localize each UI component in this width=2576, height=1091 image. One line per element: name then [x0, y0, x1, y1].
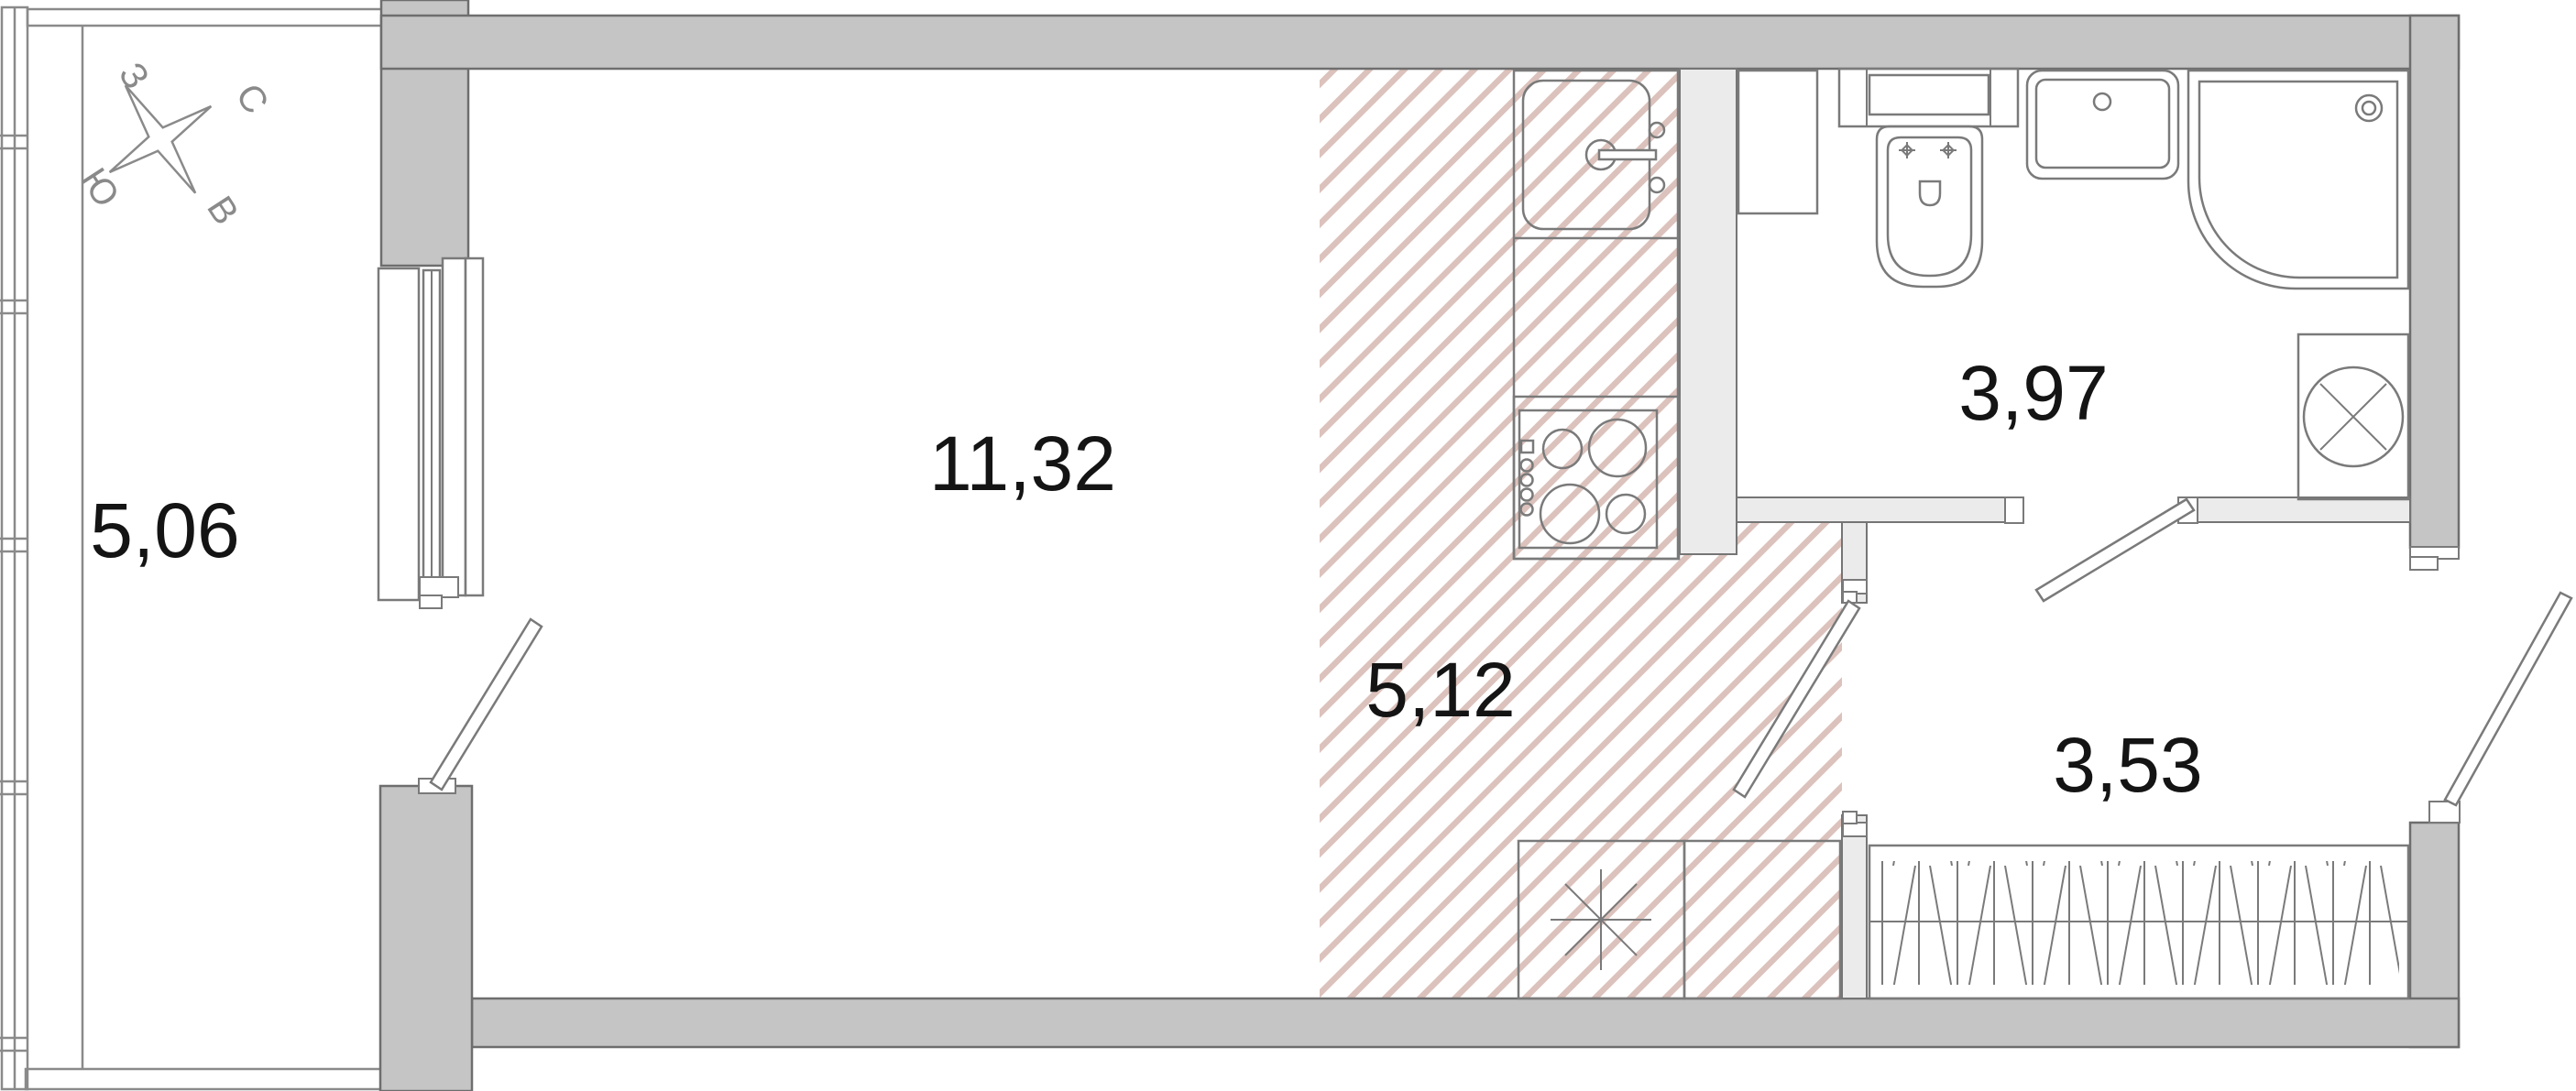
- wall-balcony-bottom-pier: [380, 786, 472, 1091]
- compass-rose: З С Ю В: [72, 52, 276, 232]
- appliance-asterisk-icon: [1551, 869, 1651, 970]
- area-label-balcony: 5,06: [90, 487, 240, 573]
- wall-stub-kitchen-door-bottom: [1842, 815, 1867, 998]
- compass-north: С: [228, 77, 277, 121]
- wall-kitchen-bathroom: [1680, 69, 1737, 554]
- balcony-door-leaf: [431, 619, 542, 790]
- wall-bottom: [472, 998, 2459, 1047]
- wall-bathroom-south-left: [1737, 497, 2022, 522]
- floor-plan: З С Ю В 5,06 11,32 5,12 3,97 3,53: [0, 0, 2576, 1091]
- duct-shaft: [1738, 71, 1817, 213]
- area-label-kitchen: 5,12: [1365, 647, 1516, 733]
- area-label-hallway: 3,53: [2053, 722, 2203, 808]
- wall-top: [381, 16, 2459, 69]
- compass-west: З: [111, 56, 157, 96]
- compass-east: В: [199, 190, 246, 232]
- balcony-window-block: [378, 258, 483, 600]
- area-label-living-room: 11,32: [929, 420, 1116, 507]
- bathroom-door-leaf: [2036, 499, 2194, 601]
- entrance-door-leaf: [2445, 593, 2571, 805]
- area-label-bathroom: 3,97: [1958, 350, 2109, 436]
- wardrobe: [1869, 846, 2408, 998]
- balcony-bottom-rail: [26, 1069, 383, 1089]
- balcony-top-rail: [27, 9, 383, 26]
- wall-bathroom-south-right: [2197, 497, 2410, 522]
- wall-right-upper: [2410, 16, 2459, 548]
